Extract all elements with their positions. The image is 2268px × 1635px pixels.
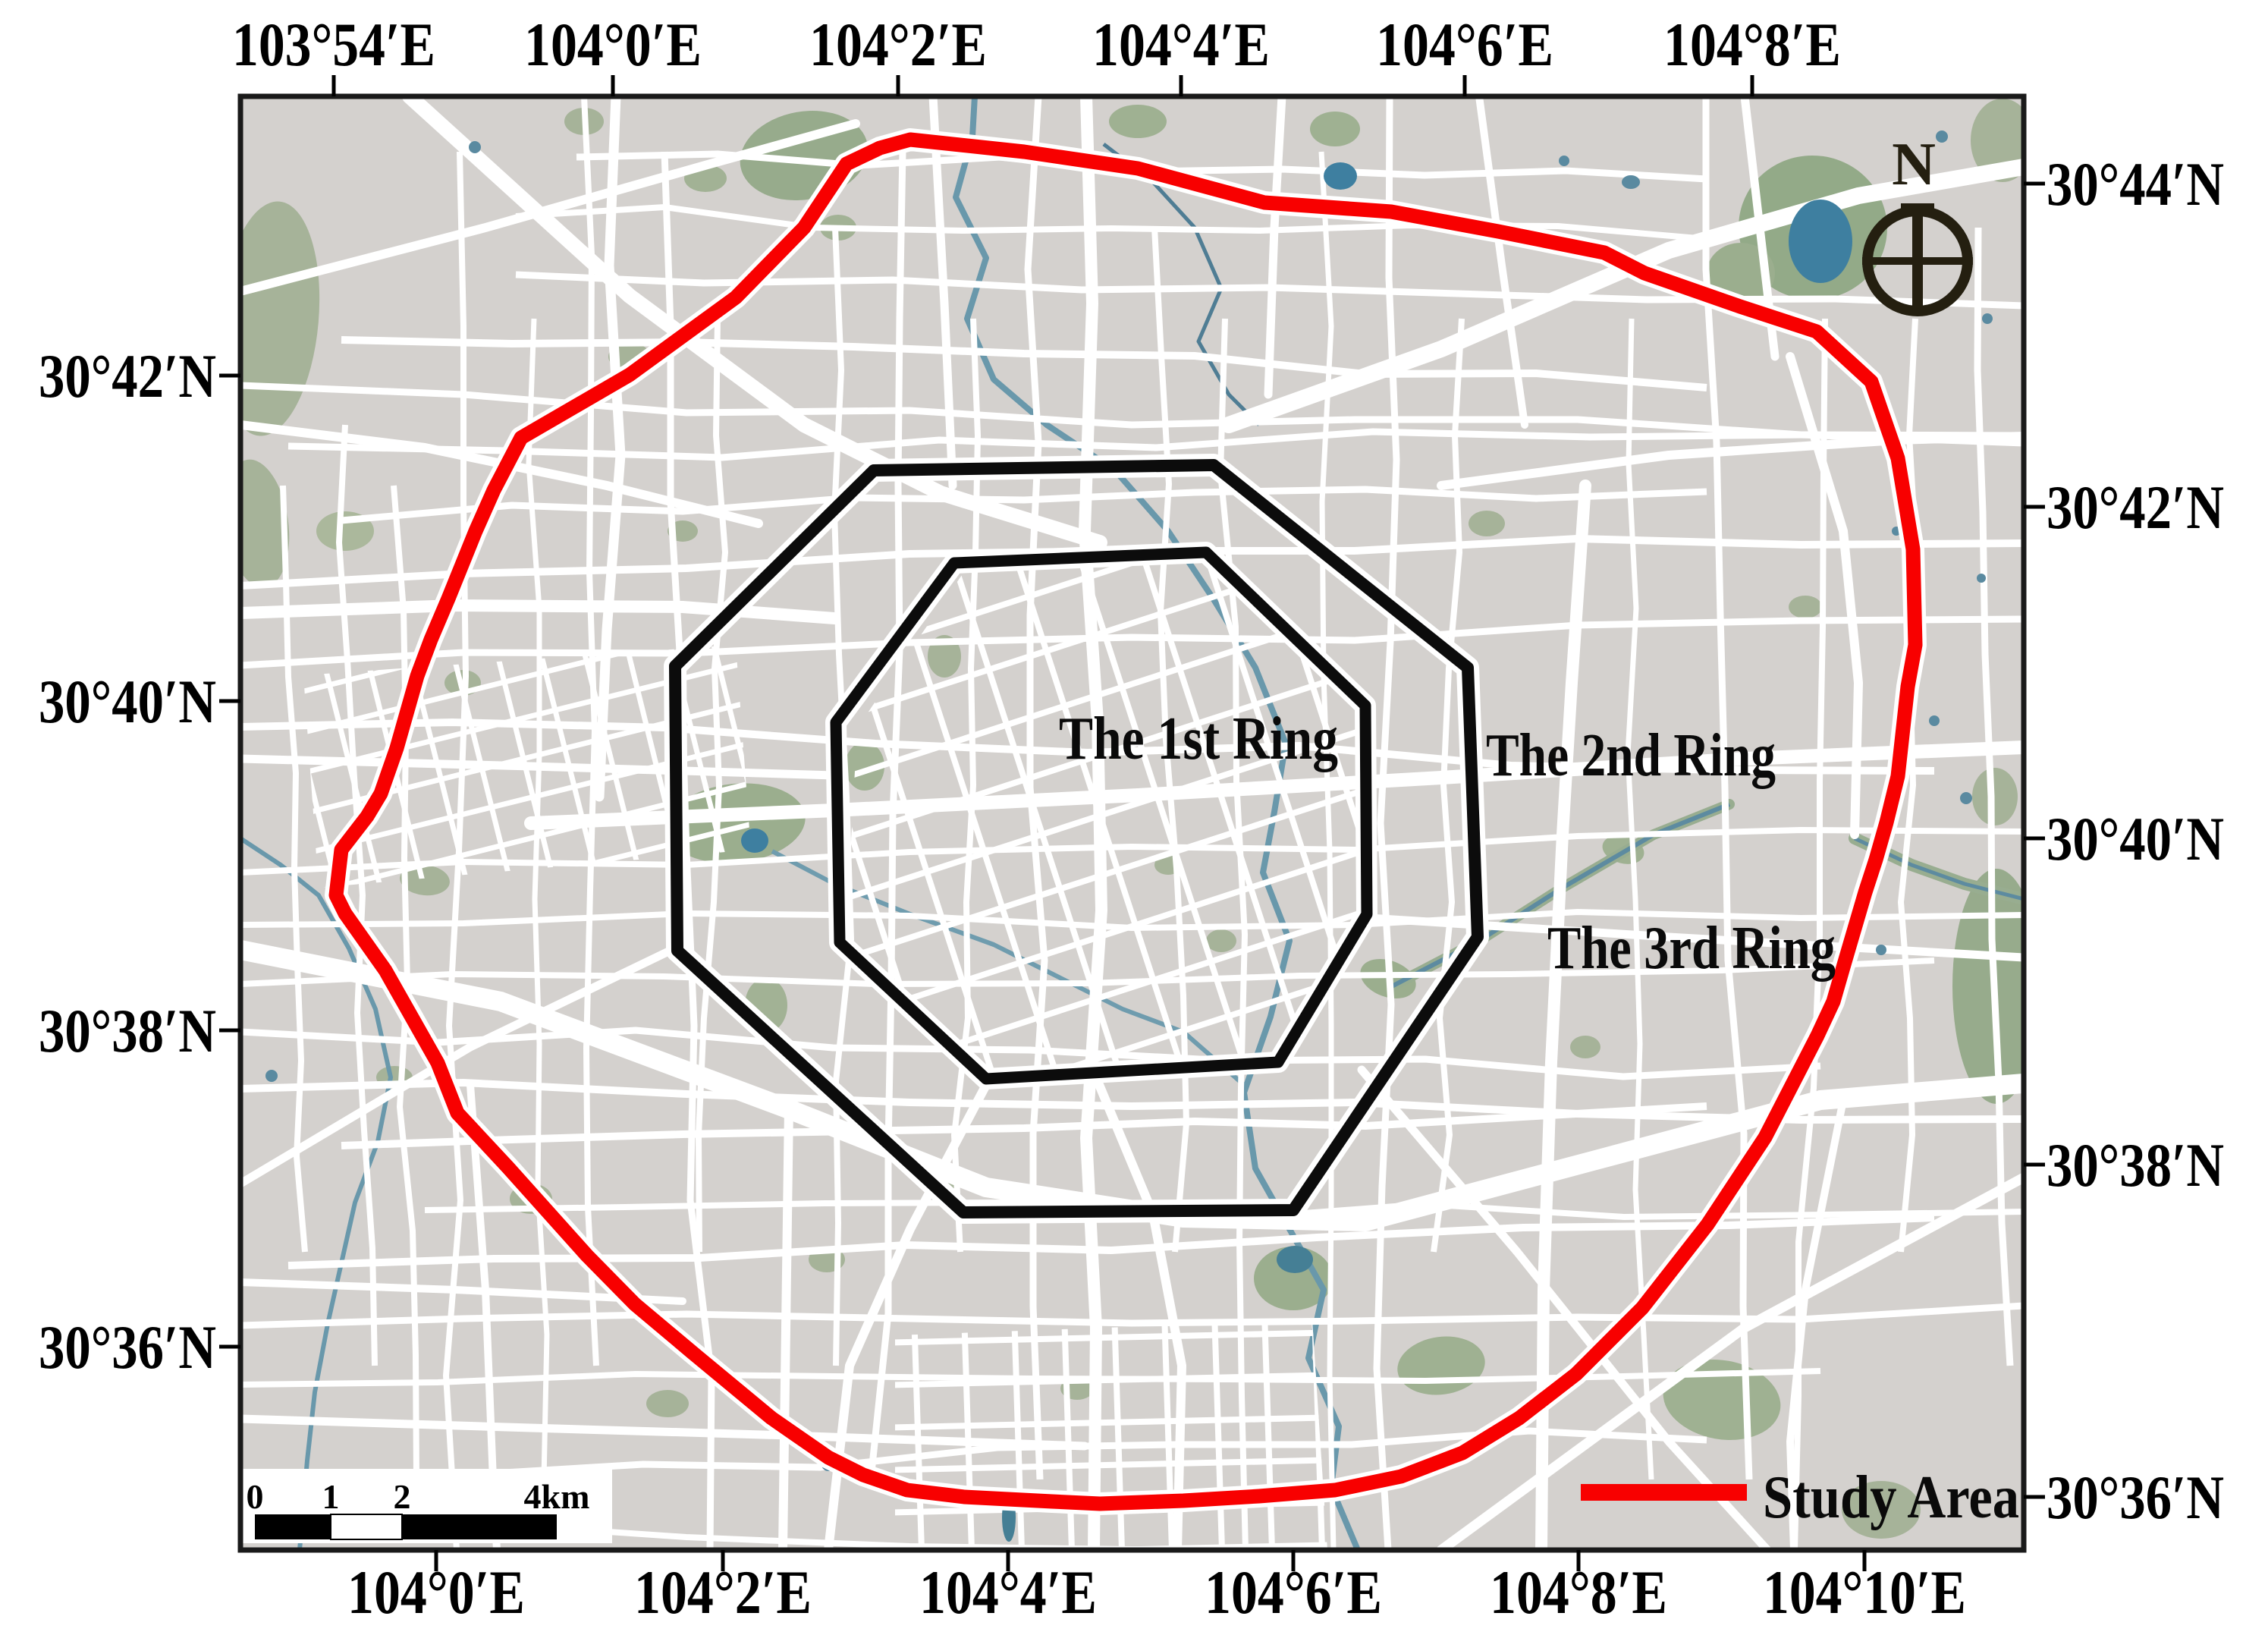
svg-text:104°8′E: 104°8′E [1490,1558,1667,1627]
svg-text:104°0′E: 104°0′E [347,1558,525,1627]
svg-text:4km: 4km [524,1477,590,1516]
svg-text:30°40′N: 30°40′N [39,667,216,736]
svg-text:Study Area: Study Area [1763,1464,2019,1531]
svg-text:The 3rd Ring: The 3rd Ring [1547,915,1836,982]
svg-text:N: N [1892,131,1936,198]
svg-text:0: 0 [247,1477,264,1516]
svg-text:103°54′E: 103°54′E [232,10,435,79]
svg-text:104°4′E: 104°4′E [919,1558,1097,1627]
svg-text:104°2′E: 104°2′E [634,1558,812,1627]
svg-text:104°8′E: 104°8′E [1663,10,1841,79]
svg-text:30°36′N: 30°36′N [2047,1463,2224,1532]
svg-text:30°42′N: 30°42′N [39,341,216,410]
svg-text:30°38′N: 30°38′N [2047,1130,2224,1200]
svg-text:The 2nd Ring: The 2nd Ring [1486,722,1776,789]
svg-text:The 1st Ring: The 1st Ring [1059,706,1338,772]
svg-text:1: 1 [322,1477,340,1516]
svg-text:104°2′E: 104°2′E [809,10,987,79]
svg-text:104°10′E: 104°10′E [1763,1558,1966,1627]
svg-text:104°6′E: 104°6′E [1376,10,1553,79]
svg-text:104°0′E: 104°0′E [524,10,702,79]
svg-text:30°40′N: 30°40′N [2047,804,2224,873]
svg-text:104°6′E: 104°6′E [1205,1558,1382,1627]
svg-text:30°38′N: 30°38′N [39,996,216,1065]
svg-text:2: 2 [394,1477,411,1516]
svg-text:30°36′N: 30°36′N [39,1313,216,1382]
svg-text:30°44′N: 30°44′N [2047,149,2224,219]
svg-text:104°4′E: 104°4′E [1092,10,1270,79]
svg-text:30°42′N: 30°42′N [2047,473,2224,542]
